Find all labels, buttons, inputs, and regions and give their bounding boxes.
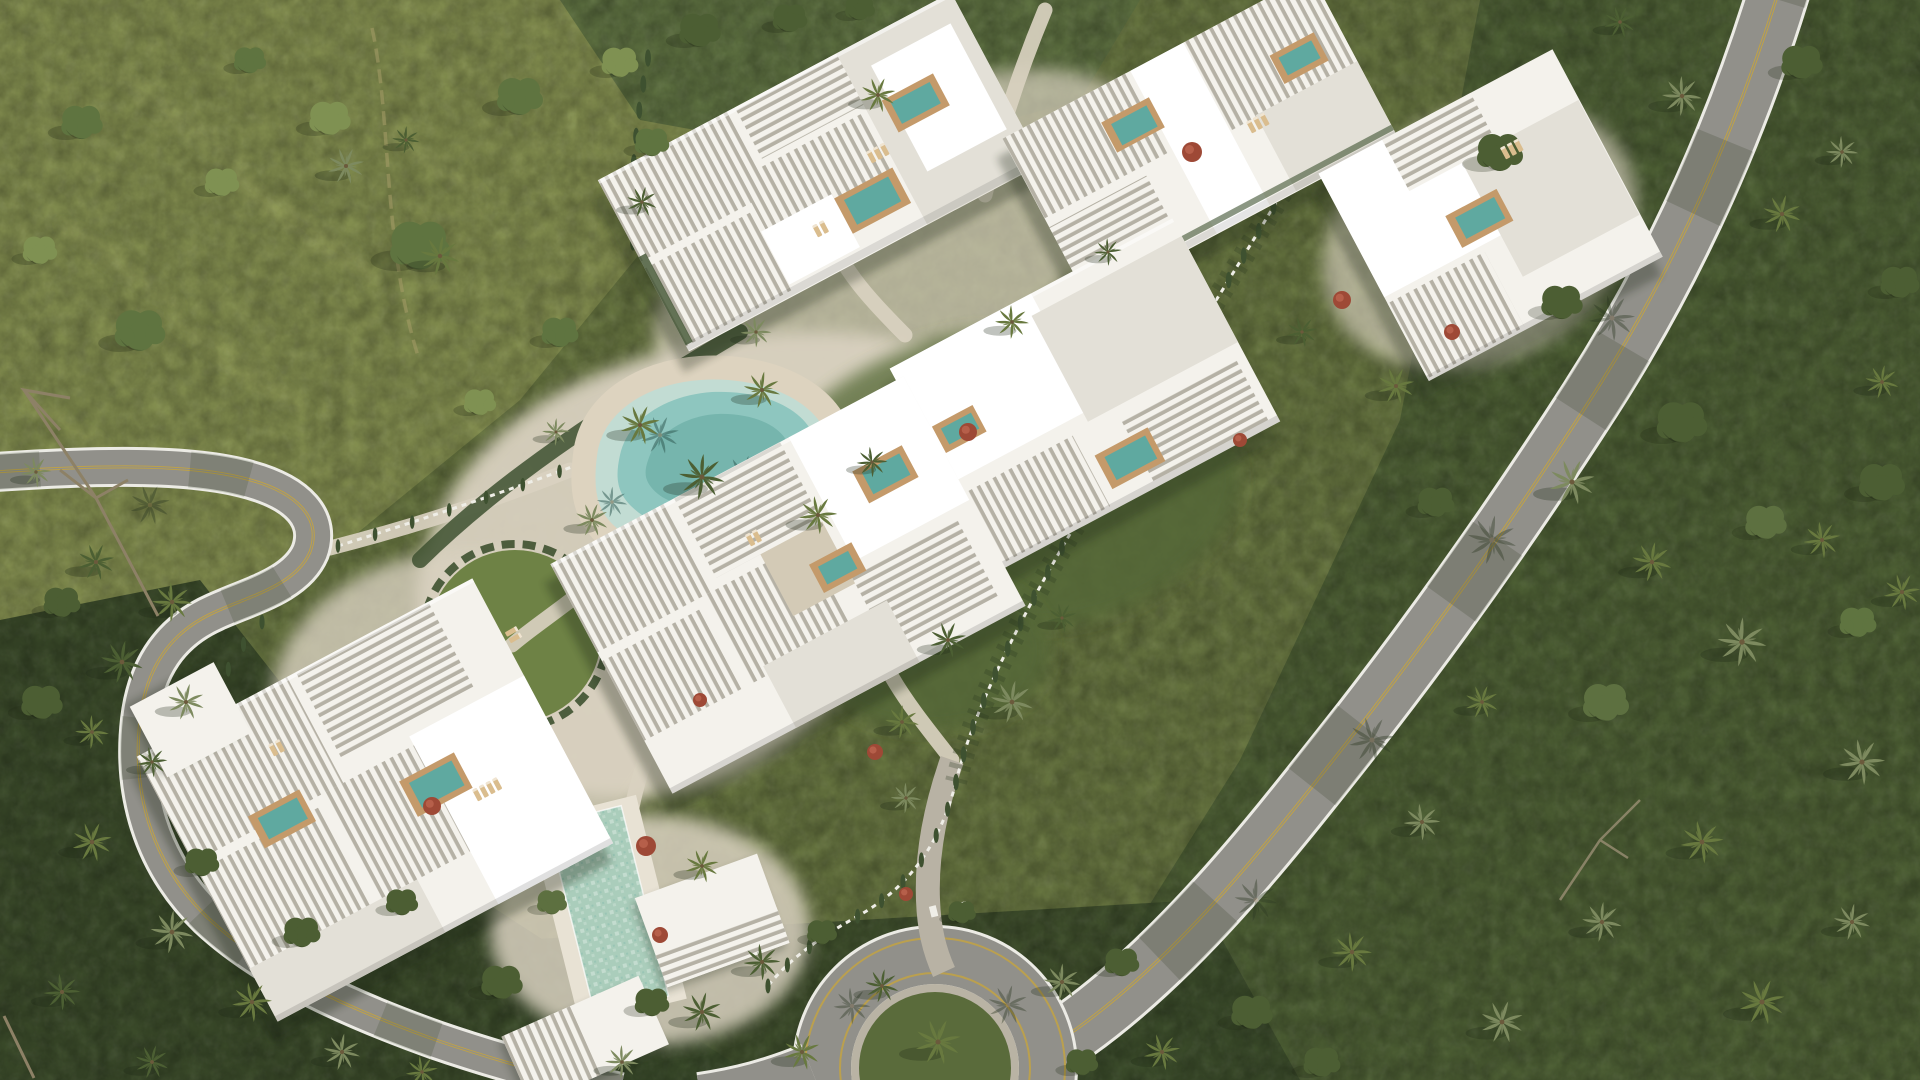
cypress-tree (879, 893, 884, 908)
shrub-highlight (1336, 294, 1344, 302)
cypress-tree (934, 828, 939, 843)
shrub-highlight (1235, 435, 1241, 441)
cypress-tree (765, 979, 770, 994)
aerial-render-stage: Bird's-eye architectural rendering: six … (0, 0, 1920, 1080)
shrub-highlight (639, 839, 648, 848)
shrub-highlight (426, 800, 434, 808)
cypress-tree (945, 802, 950, 817)
cypress-tree (1226, 272, 1232, 289)
palm-shadow (786, 519, 824, 530)
cypress-tree (241, 637, 246, 652)
shrub-highlight (869, 746, 876, 753)
cypress-tree (992, 666, 998, 683)
cypress-tree (636, 102, 642, 119)
shrub-highlight (654, 929, 661, 936)
cypress-tree (373, 527, 378, 541)
cypress-tree (900, 874, 905, 889)
palm-shadow (771, 1056, 807, 1067)
palm-shadow (218, 1007, 257, 1019)
palm-shadow (1037, 621, 1066, 630)
cypress-tree (981, 692, 987, 709)
cypress-tree (645, 49, 651, 66)
cypress-tree (1005, 640, 1011, 657)
palm-shadow (1593, 26, 1625, 35)
cypress-tree (953, 775, 958, 790)
aerial-render (0, 0, 1920, 1080)
cypress-tree (961, 746, 967, 763)
shrub-highlight (962, 426, 970, 434)
shrub-highlight (695, 695, 701, 701)
cypress-tree (970, 719, 976, 736)
cypress-tree (226, 662, 231, 677)
shrub-highlight (1446, 326, 1453, 333)
cypress-tree (640, 75, 646, 92)
cypress-tree (447, 503, 452, 517)
cypress-tree (410, 515, 415, 529)
palm-shadow (1823, 767, 1868, 781)
palm-shadow (1666, 847, 1708, 860)
cypress-tree (484, 491, 489, 505)
palm-shadow (1276, 336, 1306, 345)
shrub-highlight (1185, 145, 1194, 154)
palm-shadow (10, 476, 40, 485)
cypress-tree (1241, 247, 1247, 264)
cypress-tree (919, 852, 924, 867)
cypress-tree (785, 958, 790, 973)
cypress-tree (1031, 589, 1037, 606)
shrub-highlight (901, 889, 907, 895)
cypress-tree (336, 539, 341, 553)
cypress-tree (557, 465, 562, 479)
cypress-tree (259, 615, 264, 630)
palm-shadow (1131, 1056, 1167, 1067)
palm-shadow (126, 766, 156, 775)
cypress-tree (520, 478, 525, 492)
cypress-tree (855, 909, 860, 924)
cypress-tree (1045, 564, 1051, 581)
palm-shadow (1791, 544, 1827, 555)
